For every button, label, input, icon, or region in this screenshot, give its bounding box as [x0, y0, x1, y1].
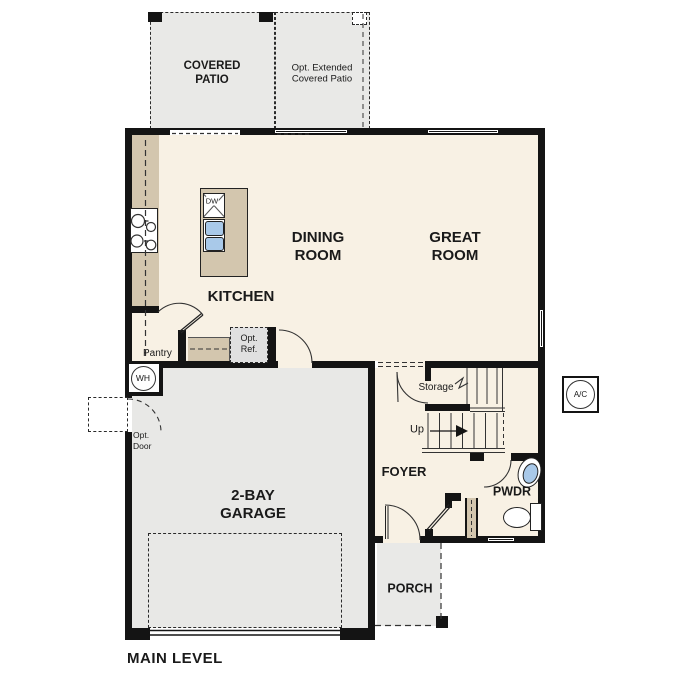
room-label-foyer: FOYER: [382, 464, 427, 480]
greatroom-side-window: [538, 310, 545, 347]
sink-basin: [205, 237, 224, 251]
room-label-covered-patio: COVEREDPATIO: [184, 60, 241, 88]
garage-door-zone: [148, 533, 342, 628]
greatroom-bottom-wall: [425, 361, 545, 368]
pwdr-wall-stub: [470, 453, 484, 461]
closet-wall-stub: [445, 493, 452, 508]
plan-title: MAIN LEVEL: [127, 650, 223, 669]
patio-post: [148, 12, 162, 22]
opt-patio-post-outline: [352, 12, 367, 25]
label-opt-ref: Opt.Ref.: [240, 333, 257, 355]
room-label-pwdr: PWDR: [493, 485, 531, 500]
label-up: Up: [410, 423, 424, 436]
toilet-icon: [503, 507, 531, 528]
patio-post: [259, 12, 273, 22]
room-label-porch: PORCH: [387, 582, 432, 597]
storage-door-stub: [425, 368, 431, 381]
garage-door: [150, 628, 340, 640]
garage-bottom-wall: [125, 628, 150, 640]
patio-sliding-door: [170, 128, 240, 135]
garage-bottom-wall: [340, 628, 375, 640]
counter-end-wall: [132, 306, 159, 313]
foyer-pwdr-passage: [465, 498, 478, 538]
hall-cased-opening: [378, 361, 425, 368]
closet-wall-stub: [425, 529, 433, 537]
label-ac: A/C: [574, 390, 587, 400]
kitchen-counter-2: [188, 337, 230, 361]
label-opt-door: Opt.Door: [133, 430, 151, 451]
label-storage: Storage: [418, 382, 453, 394]
garage-entry-opening: [278, 361, 312, 368]
pantry-wall: [178, 330, 186, 368]
greatroom-window: [428, 128, 498, 135]
room-label-ext-patio: Opt. ExtendedCovered Patio: [292, 63, 353, 86]
front-door-opening: [383, 536, 420, 543]
toilet-tank: [530, 503, 542, 531]
opt-door-landing: [88, 397, 128, 432]
garage-right-wall: [368, 361, 375, 640]
dining-window: [275, 128, 347, 135]
room-label-dining: DININGROOM: [292, 229, 345, 265]
pwdr-window: [488, 536, 514, 543]
door-jamb: [267, 327, 276, 363]
sink-basin: [205, 221, 224, 236]
room-label-garage: 2-BAYGARAGE: [220, 487, 286, 523]
porch-post: [436, 616, 448, 628]
room-label-kitchen: KITCHEN: [208, 288, 275, 306]
label-wh: WH: [136, 373, 150, 383]
room-label-great-room: GREATROOM: [429, 229, 480, 265]
floor-plan: COVEREDPATIO Opt. ExtendedCovered Patio …: [0, 0, 687, 687]
label-pantry: Pantry: [143, 348, 172, 361]
label-dw: DW: [206, 197, 219, 206]
cooktop-icon: [130, 208, 158, 253]
stair-mid-wall: [425, 404, 470, 411]
